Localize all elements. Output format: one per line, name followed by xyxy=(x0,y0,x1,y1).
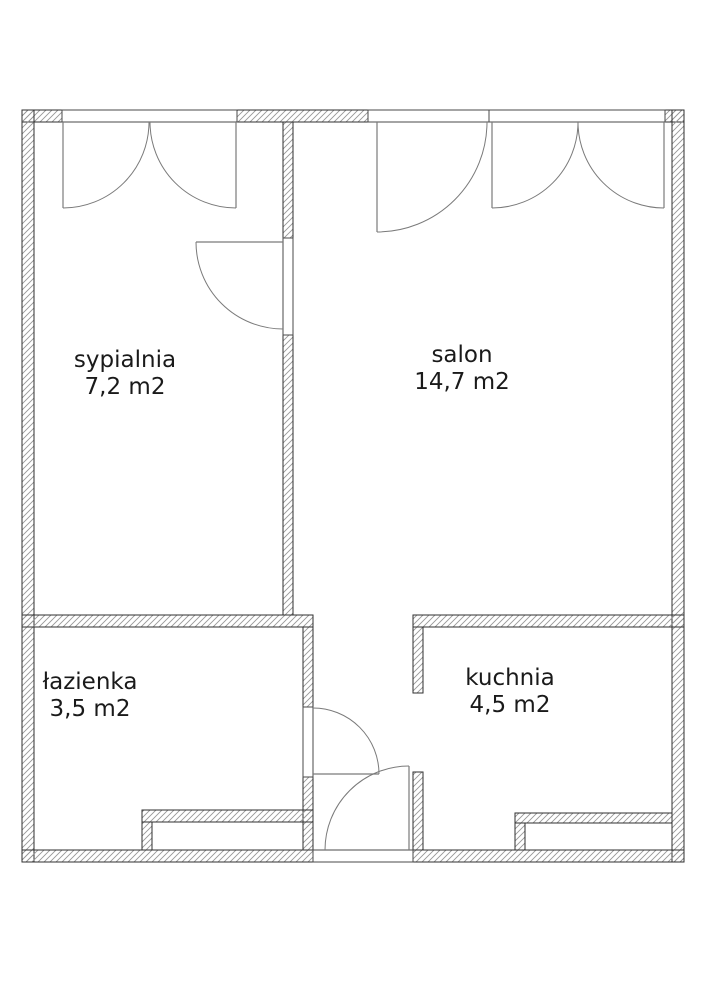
divider-wall-bedroom-salon-upper xyxy=(283,122,293,238)
room-label-kuchnia: kuchnia 4,5 m2 xyxy=(465,665,554,719)
outer-wall-left xyxy=(22,110,34,862)
door-frame-bedroom xyxy=(283,238,293,335)
waist-wall-bathroom-top xyxy=(22,615,313,627)
door-frame-entrance xyxy=(313,850,413,862)
outer-wall-top-middle xyxy=(237,110,368,122)
outer-wall-bottom-right xyxy=(413,850,684,862)
door-frame-balcony xyxy=(368,110,489,122)
doors-layer xyxy=(196,122,487,850)
door-bathroom-swing-arc xyxy=(313,708,379,774)
door-entrance-swing-arc xyxy=(325,766,409,850)
window-frame-bedroom xyxy=(62,110,237,122)
room-name-sypialnia: sypialnia xyxy=(74,347,176,374)
room-name-kuchnia: kuchnia xyxy=(465,665,554,692)
walls-layer xyxy=(22,110,684,862)
window-salon-swing-arc-1 xyxy=(492,122,578,208)
kitchen-left-wall-upper xyxy=(413,627,423,693)
kitchen-left-wall-lower xyxy=(413,772,423,850)
room-label-lazienka: łazienka 3,5 m2 xyxy=(43,669,138,723)
outer-wall-right xyxy=(672,110,684,862)
waist-wall-kitchen-top xyxy=(413,615,684,627)
outer-wall-bottom-left xyxy=(22,850,313,862)
divider-wall-bedroom-salon-lower xyxy=(283,335,293,615)
hall-wall-upper xyxy=(303,627,313,707)
door-balcony-swing-arc xyxy=(377,122,487,232)
window-frame-salon xyxy=(489,110,665,122)
kitchen-duct-left xyxy=(515,823,525,850)
bathroom-duct-left xyxy=(142,822,152,850)
door-bedroom-swing-arc xyxy=(196,242,283,329)
window-salon-swing-arc-2 xyxy=(578,122,664,208)
room-name-salon: salon xyxy=(414,342,510,369)
floor-plan-canvas: sypialnia 7,2 m2 salon 14,7 m2 łazienka … xyxy=(0,0,707,1000)
room-area-salon: 14,7 m2 xyxy=(414,369,510,396)
room-area-sypialnia: 7,2 m2 xyxy=(74,374,176,401)
floor-plan-svg xyxy=(0,0,707,1000)
window-bedroom-swing-arc-1 xyxy=(63,122,149,208)
room-area-kuchnia: 4,5 m2 xyxy=(465,692,554,719)
room-label-salon: salon 14,7 m2 xyxy=(414,342,510,396)
window-bedroom-swing-arc-2 xyxy=(150,122,236,208)
room-name-lazienka: łazienka xyxy=(43,669,138,696)
windows-layer xyxy=(63,122,664,208)
bathroom-duct-top xyxy=(142,810,313,822)
door-frame-bathroom xyxy=(303,707,313,777)
frames-layer xyxy=(62,110,665,862)
room-label-sypialnia: sypialnia 7,2 m2 xyxy=(74,347,176,401)
room-area-lazienka: 3,5 m2 xyxy=(43,696,138,723)
kitchen-duct-top xyxy=(515,813,672,823)
